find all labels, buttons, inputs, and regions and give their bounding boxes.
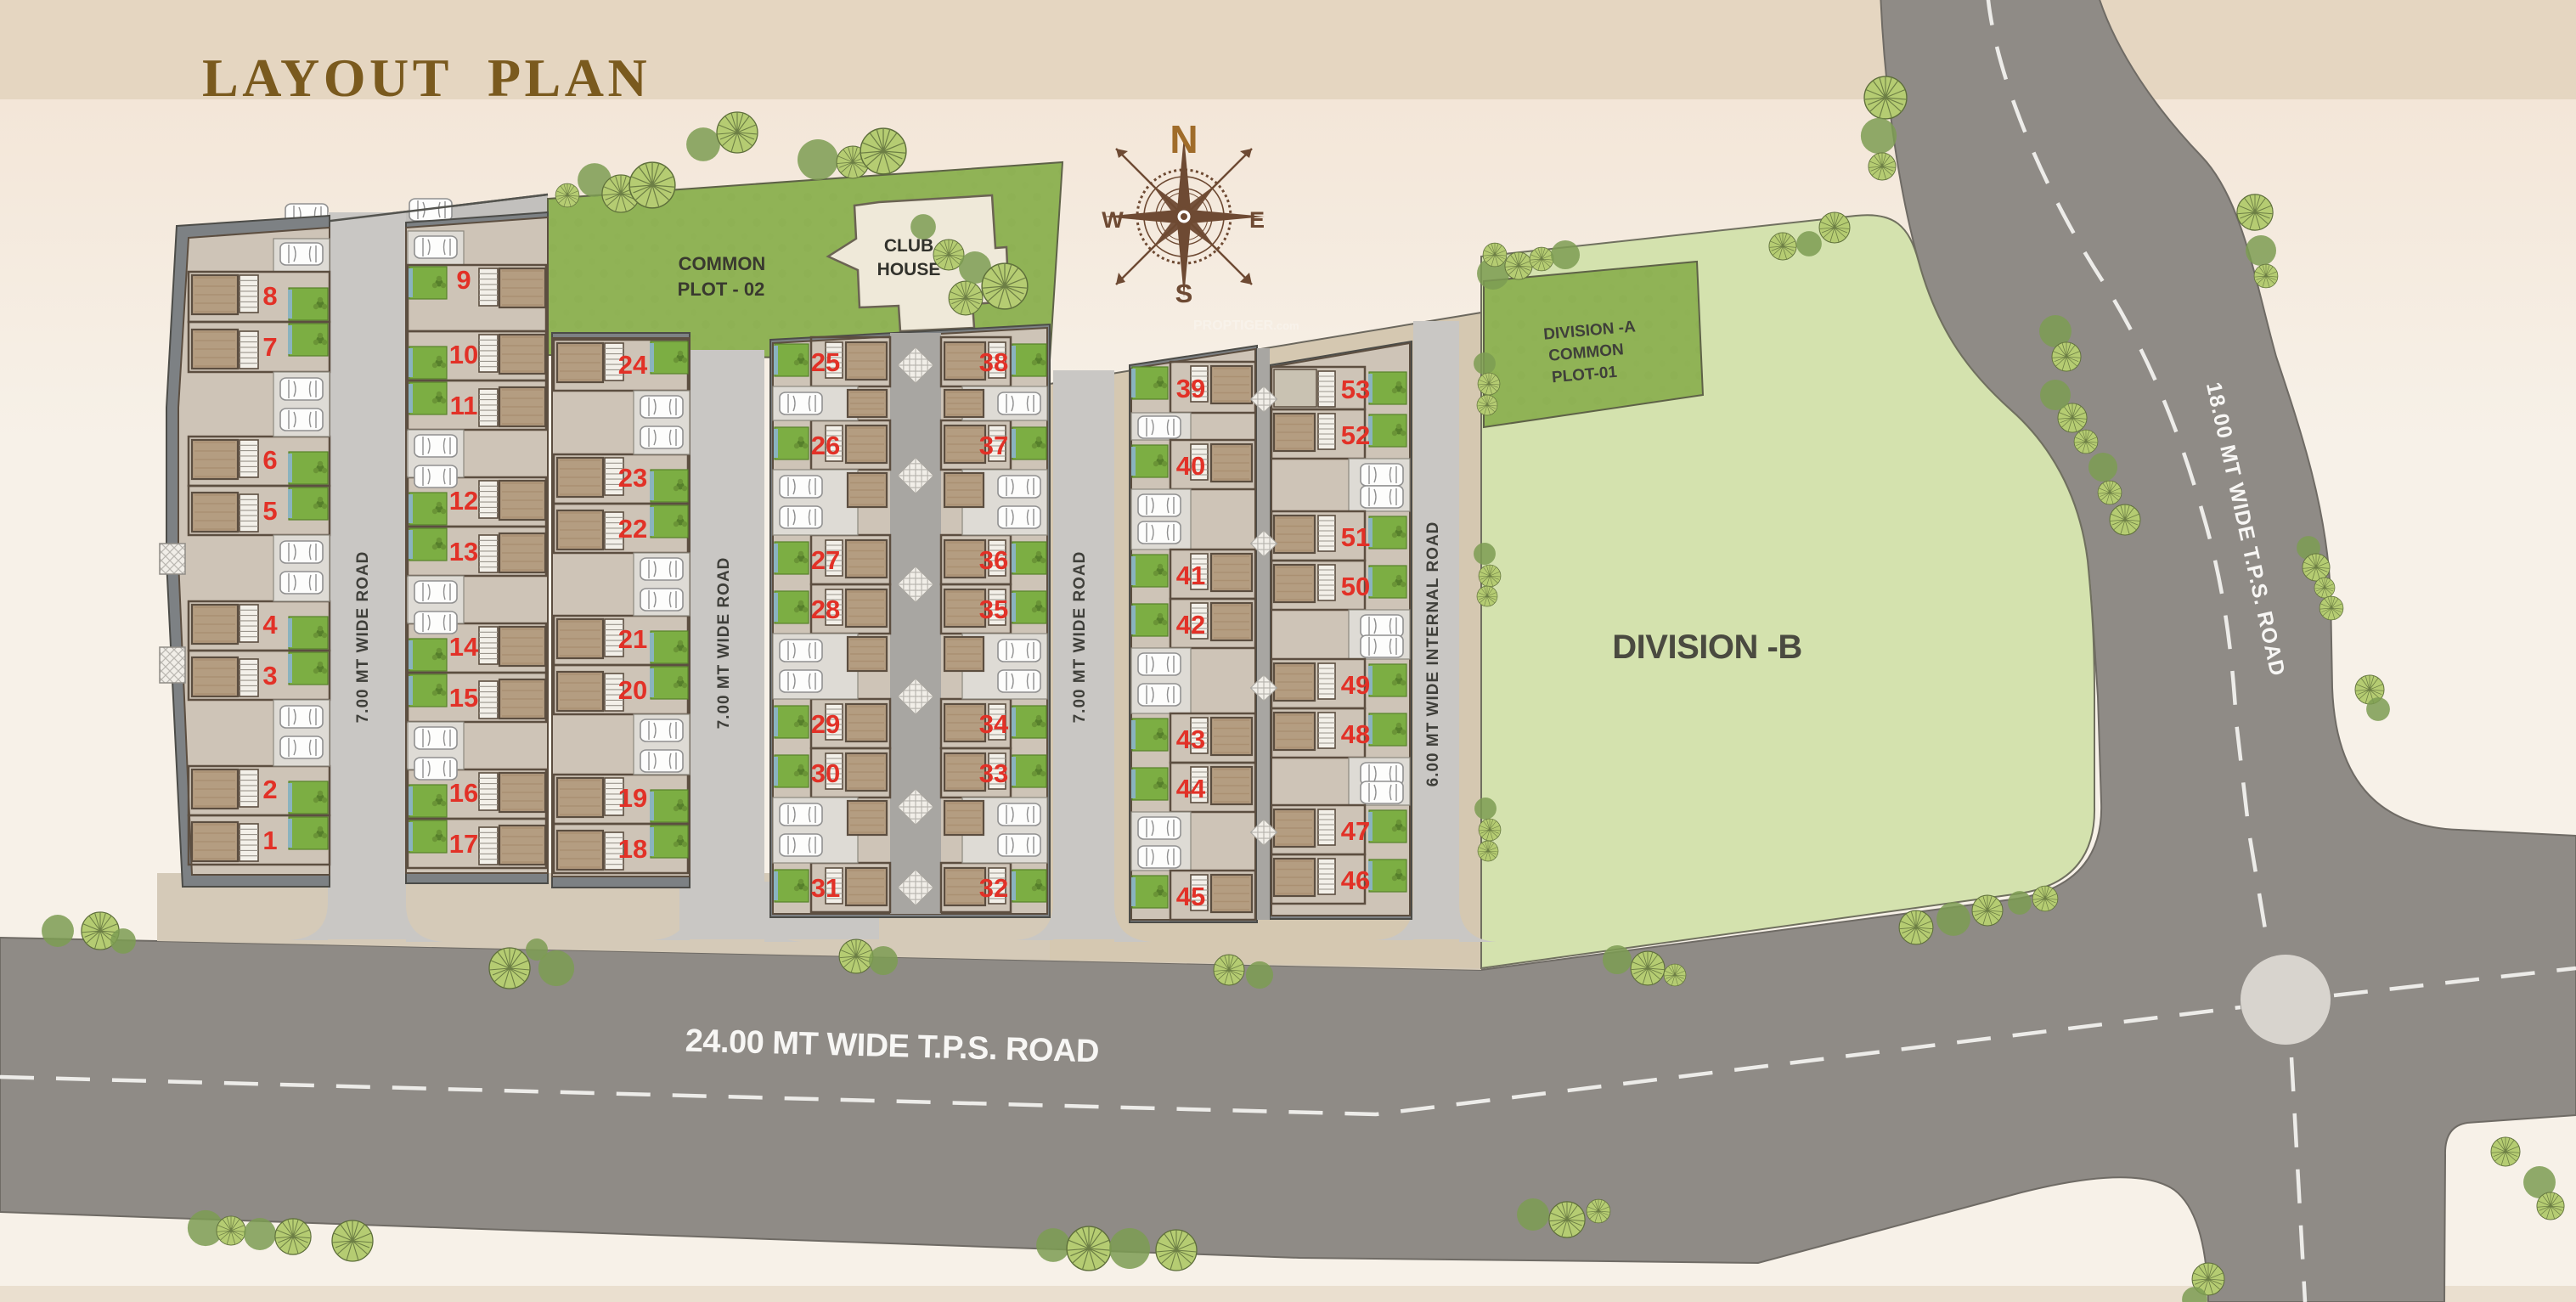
svg-text:10: 10 — [449, 340, 478, 369]
svg-text:9: 9 — [456, 265, 471, 295]
svg-text:37: 37 — [979, 431, 1008, 460]
svg-text:30: 30 — [811, 758, 840, 788]
svg-text:43: 43 — [1176, 724, 1205, 754]
svg-text:40: 40 — [1176, 451, 1205, 481]
svg-text:11: 11 — [450, 391, 478, 420]
svg-text:13: 13 — [449, 537, 478, 566]
svg-text:34: 34 — [979, 709, 1009, 739]
svg-text:17: 17 — [449, 829, 478, 859]
svg-text:25: 25 — [811, 347, 840, 377]
svg-text:14: 14 — [449, 632, 479, 662]
svg-text:23: 23 — [618, 463, 647, 493]
svg-text:15: 15 — [449, 683, 478, 713]
svg-text:W: W — [1102, 207, 1124, 233]
svg-text:8: 8 — [262, 281, 277, 311]
svg-text:PLOT - 02: PLOT - 02 — [678, 279, 765, 300]
svg-text:26: 26 — [811, 431, 840, 460]
svg-text:38: 38 — [979, 347, 1008, 377]
svg-text:53: 53 — [1341, 375, 1370, 404]
svg-text:N: N — [1170, 117, 1198, 161]
svg-text:12: 12 — [449, 486, 478, 516]
svg-text:44: 44 — [1176, 774, 1206, 803]
svg-text:42: 42 — [1176, 610, 1205, 640]
svg-text:COMMON: COMMON — [679, 253, 766, 274]
svg-text:HOUSE: HOUSE — [877, 260, 941, 279]
svg-text:18: 18 — [618, 834, 647, 864]
svg-text:DIVISION -B: DIVISION -B — [1612, 628, 1801, 666]
svg-text:33: 33 — [979, 758, 1008, 788]
svg-text:46: 46 — [1341, 865, 1370, 895]
svg-text:3: 3 — [262, 661, 277, 690]
svg-text:19: 19 — [618, 783, 647, 813]
svg-text:47: 47 — [1341, 816, 1370, 846]
svg-text:7: 7 — [262, 332, 277, 362]
svg-text:7.00 MT WIDE ROAD: 7.00 MT WIDE ROAD — [1071, 551, 1089, 724]
svg-text:S: S — [1175, 279, 1193, 308]
svg-text:21: 21 — [618, 624, 647, 654]
svg-text:32: 32 — [979, 873, 1008, 903]
svg-text:24: 24 — [618, 350, 648, 380]
svg-text:22: 22 — [618, 514, 647, 544]
svg-text:20: 20 — [618, 675, 647, 705]
svg-text:6: 6 — [262, 445, 277, 475]
svg-text:29: 29 — [811, 709, 840, 739]
svg-text:52: 52 — [1341, 420, 1370, 450]
svg-text:50: 50 — [1341, 572, 1370, 601]
svg-text:6.00 MT WIDE INTERNAL ROAD: 6.00 MT WIDE INTERNAL ROAD — [1424, 521, 1442, 787]
svg-text:27: 27 — [811, 545, 840, 575]
svg-text:48: 48 — [1341, 719, 1370, 749]
svg-text:2: 2 — [262, 775, 277, 804]
svg-text:39: 39 — [1176, 374, 1205, 403]
svg-text:PROPTIGER.com: PROPTIGER.com — [1193, 318, 1299, 333]
svg-text:LAYOUT PLAN: LAYOUT PLAN — [202, 48, 651, 108]
svg-text:35: 35 — [979, 595, 1008, 624]
svg-text:4: 4 — [262, 610, 278, 640]
svg-text:7.00 MT WIDE ROAD: 7.00 MT WIDE ROAD — [715, 557, 733, 730]
svg-text:5: 5 — [262, 496, 277, 526]
svg-text:1: 1 — [262, 826, 277, 855]
svg-text:41: 41 — [1176, 561, 1205, 590]
svg-text:E: E — [1249, 207, 1265, 233]
svg-text:16: 16 — [449, 778, 478, 808]
svg-text:31: 31 — [811, 873, 840, 903]
svg-text:45: 45 — [1176, 882, 1205, 911]
svg-text:36: 36 — [979, 545, 1008, 575]
svg-text:28: 28 — [811, 595, 840, 624]
svg-text:51: 51 — [1341, 522, 1370, 552]
svg-text:49: 49 — [1341, 670, 1370, 700]
svg-text:7.00 MT WIDE ROAD: 7.00 MT WIDE ROAD — [354, 551, 372, 724]
